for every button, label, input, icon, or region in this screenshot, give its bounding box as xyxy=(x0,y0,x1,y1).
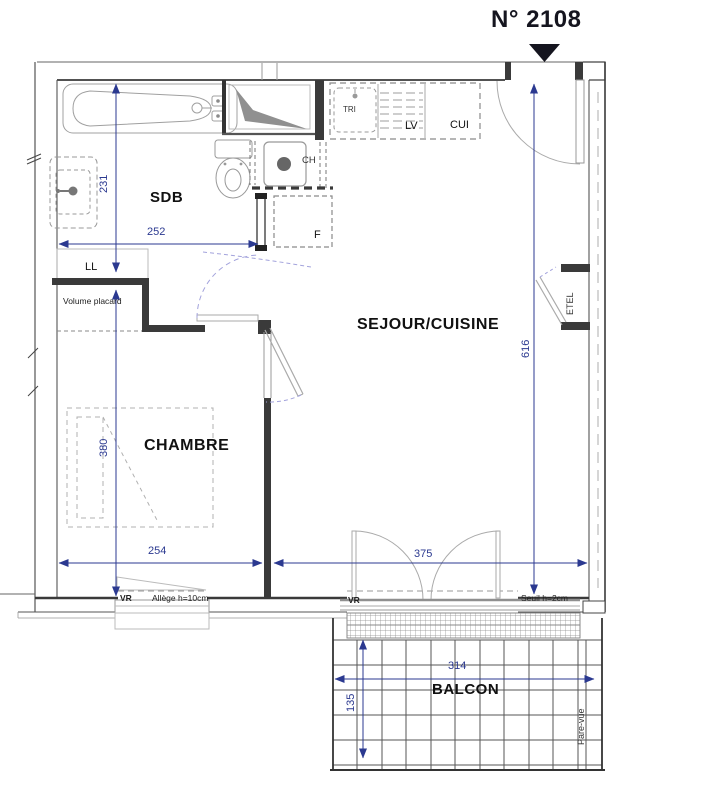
unit-number: N° 2108 xyxy=(491,8,582,32)
label-vr-chambre: VR xyxy=(120,594,132,603)
floorplan-page: N° 2108 SDB SEJOUR/CUISINE CHAMBRE BALCO… xyxy=(0,0,713,800)
label-lv: LV xyxy=(405,121,418,132)
dim-balcon-width: 314 xyxy=(448,661,466,672)
room-label-sejour-cuisine: SEJOUR/CUISINE xyxy=(357,317,499,333)
room-label-sdb: SDB xyxy=(150,190,183,205)
label-pare-vue: Pare-vue xyxy=(577,708,586,745)
label-allege: Allège h=10cm xyxy=(152,594,208,603)
dim-sdb-width: 252 xyxy=(147,227,165,238)
label-volume-placard: Volume placard xyxy=(63,297,122,306)
dim-sdb-depth: 231 xyxy=(99,175,110,193)
label-vr-sejour: VR xyxy=(348,596,360,605)
room-label-chambre: CHAMBRE xyxy=(144,438,229,454)
dim-sejour-width: 375 xyxy=(414,549,432,560)
label-fridge: F xyxy=(314,230,321,241)
bathtub xyxy=(63,84,237,133)
label-seuil: Seuil h=2cm xyxy=(521,594,568,603)
sdb-door xyxy=(203,193,311,267)
north-triangle-icon xyxy=(529,44,560,62)
bed xyxy=(67,408,213,527)
chambre-door xyxy=(197,255,303,402)
dim-chambre-width: 254 xyxy=(148,546,166,557)
label-tri: TRI xyxy=(343,106,356,114)
dim-balcon-depth: 135 xyxy=(346,694,357,712)
chambre-window xyxy=(115,577,209,629)
floorplan-linework xyxy=(0,0,713,800)
dim-chambre-depth: 380 xyxy=(99,439,110,457)
threshold-hatch xyxy=(347,613,580,638)
label-cui: CUI xyxy=(450,120,469,131)
label-etel: ETEL xyxy=(566,292,575,315)
washing-machine-space xyxy=(57,249,148,281)
etel-closet xyxy=(536,264,590,330)
toilet xyxy=(215,140,252,198)
dim-sejour-depth: 616 xyxy=(521,340,532,358)
label-ll: LL xyxy=(85,262,97,273)
entrance-door xyxy=(497,80,584,164)
label-ch: CH xyxy=(302,156,316,166)
room-label-balcon: BALCON xyxy=(432,682,499,697)
